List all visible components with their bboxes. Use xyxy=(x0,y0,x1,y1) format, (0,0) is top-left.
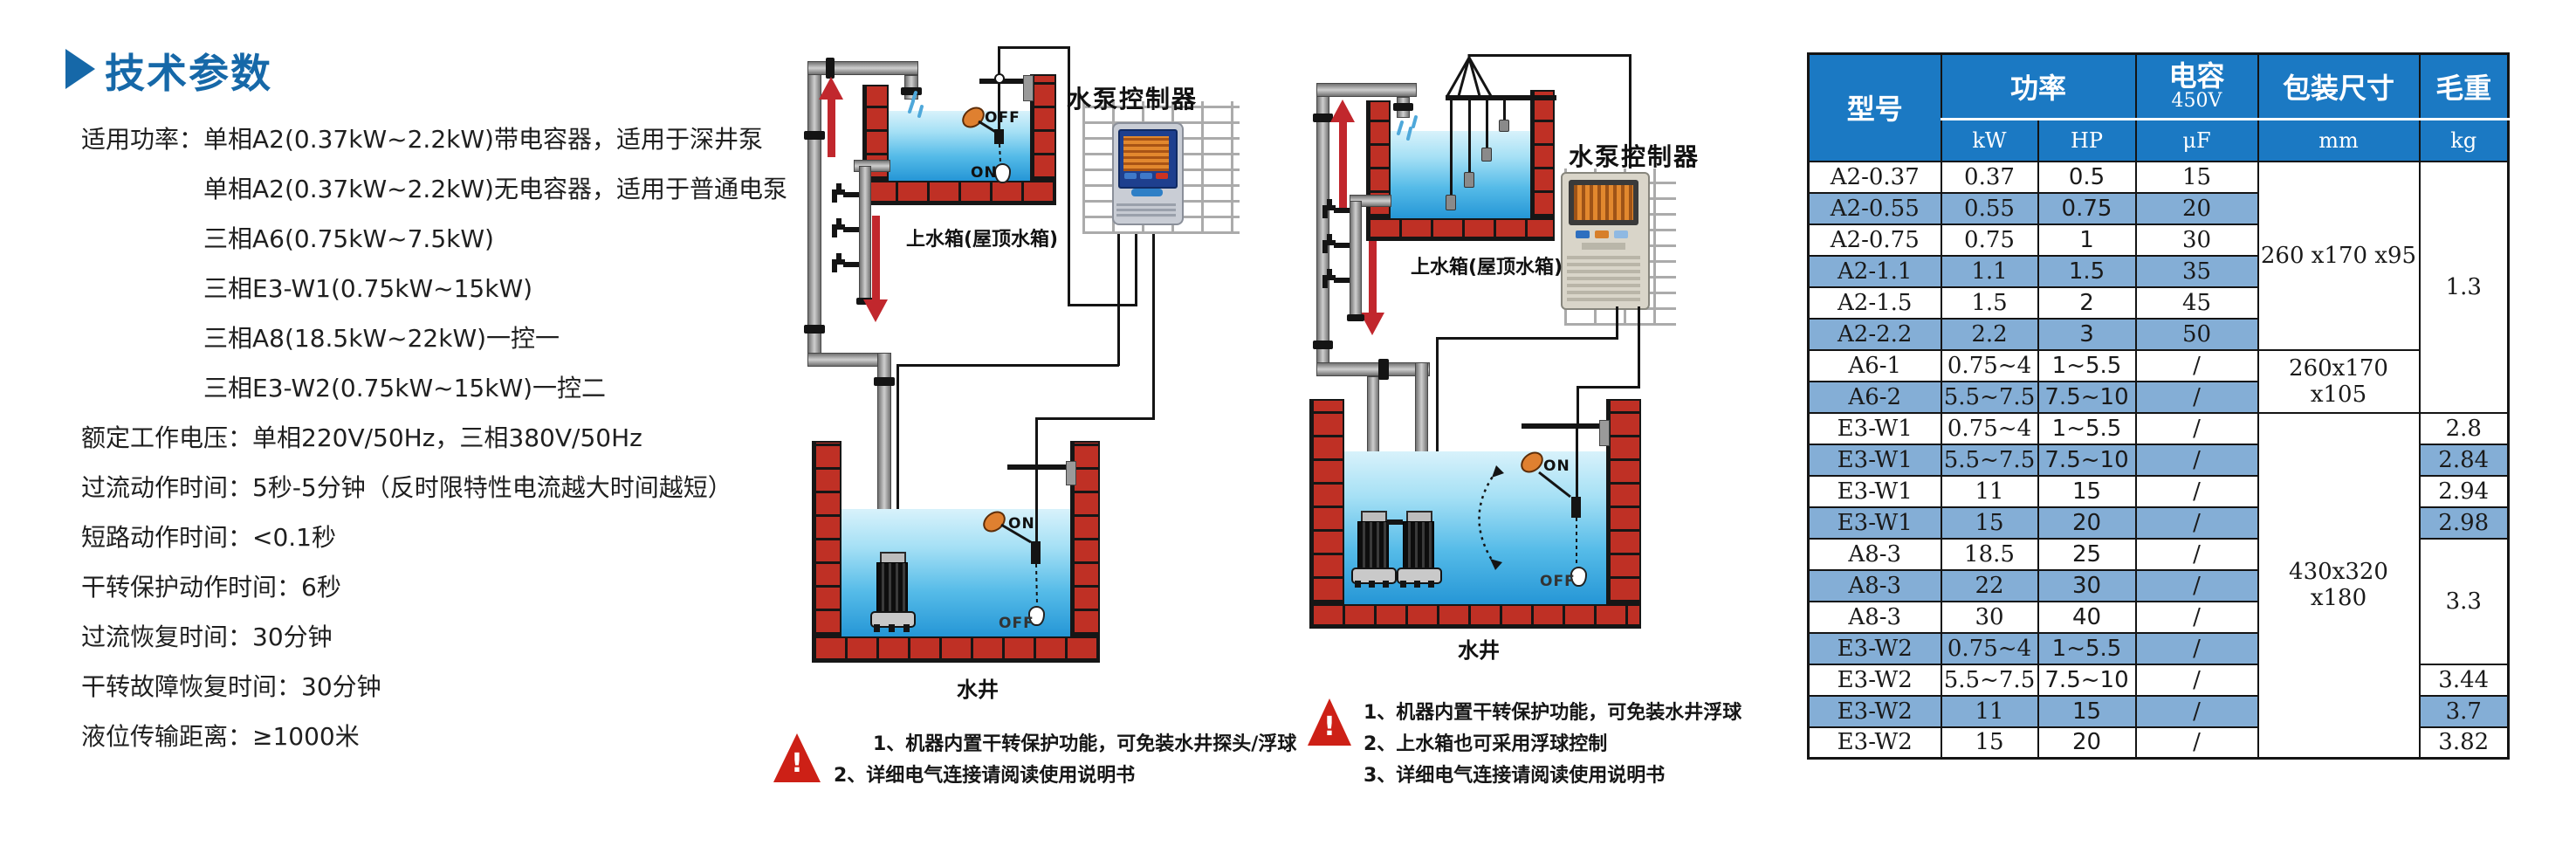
submersible-pump xyxy=(876,562,908,615)
cell-hp: 1~5.5 xyxy=(2038,633,2136,664)
cell-uf: / xyxy=(2136,539,2258,570)
cell-model: A2-0.75 xyxy=(1809,224,1941,256)
well-float-on-label: ON xyxy=(1543,457,1570,475)
tank-right-wall xyxy=(1530,90,1555,218)
note-line: 2、上水箱也可采用浮球控制 xyxy=(1364,728,1607,756)
riser-pipe xyxy=(1316,83,1329,376)
probe-electrode xyxy=(1464,172,1474,188)
wire xyxy=(1436,337,1618,340)
tank-float-off-label: OFF xyxy=(985,109,1020,127)
table-body: A2-0.370.370.515260 x170 x951.3A2-0.550.… xyxy=(1809,162,2509,759)
wire xyxy=(1576,429,1578,499)
unit-kg: kg xyxy=(2420,120,2509,162)
cell-model: E3-W1 xyxy=(1809,444,1941,476)
controller-badge xyxy=(1131,189,1163,196)
note-line: 1、机器内置干转保护功能，可免装水井浮球 xyxy=(1364,697,1741,725)
cell-kw: 11 xyxy=(1941,476,2038,507)
wire xyxy=(1486,100,1488,151)
float-weight xyxy=(1571,497,1581,518)
cell-uf: / xyxy=(2136,382,2258,413)
wire xyxy=(1577,386,1640,389)
cell-kw: 11 xyxy=(1941,696,2038,727)
tank-label: 上水箱(屋顶水箱) xyxy=(906,224,1058,251)
wire xyxy=(1469,54,1631,57)
faucet-icon xyxy=(1320,199,1350,222)
leg xyxy=(1428,581,1434,588)
well-float-on-label: ON xyxy=(1008,515,1035,533)
cell-packing: 260 x170 x95 xyxy=(2258,162,2420,350)
wire xyxy=(1035,417,1038,467)
spec-line: 三相E3-W1(0.75kW~15kW) xyxy=(203,276,532,302)
plate xyxy=(1023,75,1034,101)
plate xyxy=(1066,461,1076,485)
page: 技术参数 适用功率：单相A2(0.37kW~2.2kW)带电容器，适用于深井泵单… xyxy=(0,0,2576,853)
cell-hp: 1.5 xyxy=(2038,256,2136,287)
cell-kw: 22 xyxy=(1941,570,2038,602)
fit xyxy=(1393,103,1413,111)
cell-uf: / xyxy=(2136,602,2258,633)
wire xyxy=(1117,223,1120,366)
unit-mm: mm xyxy=(2258,120,2420,162)
page-title: 技术参数 xyxy=(105,42,272,100)
flow-up-arrow xyxy=(1330,100,1355,122)
cell-model: A2-0.37 xyxy=(1809,162,1941,193)
cell-uf: / xyxy=(2136,413,2258,444)
controller-vents xyxy=(1567,256,1640,301)
leg xyxy=(889,624,895,632)
leg xyxy=(1355,581,1361,588)
spec-line: 适用功率：单相A2(0.37kW~2.2kW)带电容器，适用于深井泵 xyxy=(81,127,763,153)
bottom-pipe xyxy=(1316,362,1430,376)
shaft xyxy=(828,100,835,157)
table-row: A2-0.370.370.515260 x170 x951.3 xyxy=(1809,162,2509,193)
tank-bottom xyxy=(1366,218,1555,241)
cell-model: E3-W2 xyxy=(1809,696,1941,727)
tr: 型号 功率 电容 450V 包装尺寸 毛重 xyxy=(1809,54,2509,120)
wire xyxy=(1135,223,1137,306)
sp xyxy=(1322,244,1328,253)
spec-line: 干转保护动作时间：6秒 xyxy=(81,574,341,601)
well-float-off-label: OFF xyxy=(1540,573,1576,590)
wire xyxy=(998,46,1000,84)
plate xyxy=(1599,420,1610,446)
capacitance-voltage: 450V xyxy=(2137,91,2257,112)
fit xyxy=(804,131,825,140)
cell-hp: 0.5 xyxy=(2038,162,2136,193)
fit xyxy=(1378,359,1389,380)
well-right-wall xyxy=(1606,399,1641,604)
cell-model: A6-2 xyxy=(1809,382,1941,413)
cell-hp: 1~5.5 xyxy=(2038,350,2136,382)
tank-water xyxy=(1391,131,1530,218)
submersible-pump xyxy=(1403,521,1434,571)
faucet-icon xyxy=(1320,234,1350,257)
cell-weight: 3.44 xyxy=(2420,664,2509,696)
cell-uf: 20 xyxy=(2136,193,2258,224)
cell-model: E3-W2 xyxy=(1809,727,1941,759)
cell-uf: / xyxy=(2136,727,2258,759)
well-bottom xyxy=(812,636,1100,663)
cell-kw: 18.5 xyxy=(1941,539,2038,570)
tap-downpipe xyxy=(1350,201,1362,320)
spec-line: 过流恢复时间：30分钟 xyxy=(81,624,333,650)
faucet-icon xyxy=(1320,269,1350,292)
well-float-bracket xyxy=(1522,423,1606,429)
sp xyxy=(832,263,837,272)
col-capacitance: 电容 450V xyxy=(2136,54,2258,120)
spec-line: 单相A2(0.37kW~2.2kW)无电容器，适用于普通电泵 xyxy=(203,176,787,203)
cell-uf: 45 xyxy=(2136,287,2258,319)
cell-kw: 2.2 xyxy=(1941,319,2038,350)
spec-line: 干转故障恢复时间：30分钟 xyxy=(81,674,381,700)
cell-weight: 2.84 xyxy=(2420,444,2509,476)
wire xyxy=(1035,470,1038,543)
cell-model: E3-W1 xyxy=(1809,507,1941,539)
col-model: 型号 xyxy=(1809,54,1941,162)
controller-badge xyxy=(1582,243,1625,250)
cell-kw: 0.55 xyxy=(1941,193,2038,224)
cell-weight: 1.3 xyxy=(2420,162,2509,413)
leg xyxy=(1400,581,1406,588)
well-label: 水井 xyxy=(925,672,1030,703)
cell-kw: 15 xyxy=(1941,507,2038,539)
cell-hp: 40 xyxy=(2038,602,2136,633)
cell-kw: 1.1 xyxy=(1941,256,2038,287)
table-header: 型号 功率 电容 450V 包装尺寸 毛重 kW HP μF mm kg xyxy=(1809,54,2509,162)
cell-kw: 15 xyxy=(1941,727,2038,759)
table-row: A6-10.75~41~5.5/260x170 x105 xyxy=(1809,350,2509,382)
wire xyxy=(1616,306,1618,340)
wire xyxy=(1450,100,1453,198)
submersible-pump xyxy=(1357,521,1389,571)
cell-kw: 0.75 xyxy=(1941,224,2038,256)
hd xyxy=(1327,269,1332,277)
well-left-wall xyxy=(812,441,841,636)
leg xyxy=(1369,581,1375,588)
probe-electrode xyxy=(1446,195,1456,210)
cell-kw: 0.75~4 xyxy=(1941,413,2038,444)
spec-line: 三相A6(0.75kW~7.5kW) xyxy=(203,226,494,252)
cell-uf: / xyxy=(2136,444,2258,476)
cell-uf: / xyxy=(2136,696,2258,727)
controller-display xyxy=(1574,185,1633,220)
flow-down-arrow xyxy=(863,299,888,322)
cell-kw: 30 xyxy=(1941,602,2038,633)
cell-weight: 2.98 xyxy=(2420,507,2509,539)
cell-model: E3-W1 xyxy=(1809,413,1941,444)
wire xyxy=(1152,223,1155,419)
faucet-icon xyxy=(829,253,859,276)
cell-model: A8-3 xyxy=(1809,602,1941,633)
cell-hp: 0.75 xyxy=(2038,193,2136,224)
spec-line: 三相A8(18.5kW~22kW)一控一 xyxy=(203,326,560,352)
faucet-icon xyxy=(829,218,859,241)
heading-triangle-icon xyxy=(65,49,95,89)
cell-model: E3-W1 xyxy=(1809,476,1941,507)
cell-hp: 1 xyxy=(2038,224,2136,256)
hd xyxy=(1327,199,1332,207)
leg xyxy=(874,624,880,632)
hd xyxy=(836,253,841,261)
spec-line: 过流动作时间：5秒-5分钟（反时限特性电流越大时间越短） xyxy=(81,475,732,501)
table-row: E3-W10.75~41~5.5/430x320 x1802.8 xyxy=(1809,413,2509,444)
sp xyxy=(1322,209,1328,218)
shaft xyxy=(1339,122,1347,211)
cell-hp: 20 xyxy=(2038,727,2136,759)
shaft xyxy=(872,216,880,299)
bar xyxy=(1387,519,1403,525)
cell-kw: 1.5 xyxy=(1941,287,2038,319)
hd xyxy=(836,183,841,191)
controller-vents xyxy=(1116,203,1176,218)
cell-model: E3-W2 xyxy=(1809,664,1941,696)
gantry-legs xyxy=(1447,54,1491,96)
tank-right-wall xyxy=(1030,74,1056,181)
controller-button xyxy=(1614,230,1628,238)
cell-uf: / xyxy=(2136,350,2258,382)
controller-label: 水泵控制器 xyxy=(1569,138,1700,173)
cell-model: A2-2.2 xyxy=(1809,319,1941,350)
cell-hp: 7.5~10 xyxy=(2038,382,2136,413)
cell-kw: 0.75~4 xyxy=(1941,350,2038,382)
cell-hp: 7.5~10 xyxy=(2038,664,2136,696)
warning-icon: ! xyxy=(773,733,821,782)
cell-hp: 25 xyxy=(2038,539,2136,570)
hd xyxy=(836,218,841,226)
cell-kw: 0.75~4 xyxy=(1941,633,2038,664)
controller-button xyxy=(1595,230,1609,238)
fit xyxy=(804,325,825,334)
note-line: 2、详细电气连接请阅读使用说明书 xyxy=(834,760,1135,788)
controller-button xyxy=(1140,173,1152,179)
wire xyxy=(1068,304,1137,306)
cell-packing: 430x320 x180 xyxy=(2258,413,2420,759)
cell-kw: 5.5~7.5 xyxy=(1941,382,2038,413)
cell-uf: / xyxy=(2136,507,2258,539)
col-weight: 毛重 xyxy=(2420,54,2509,120)
cell-model: E3-W2 xyxy=(1809,633,1941,664)
cell-uf: 50 xyxy=(2136,319,2258,350)
span: ! xyxy=(1308,712,1351,742)
wire xyxy=(896,364,1119,367)
cell-packing: 260x170 x105 xyxy=(2258,350,2420,413)
col-power: 功率 xyxy=(1941,54,2136,120)
tank-float-on-label: ON xyxy=(971,164,998,182)
spec-line: 三相E3-W2(0.75kW~15kW)一控二 xyxy=(203,375,606,402)
wire xyxy=(998,46,1070,49)
tap-downpipe xyxy=(859,166,871,303)
col-packing: 包装尺寸 xyxy=(2258,54,2420,120)
controller-button xyxy=(1156,173,1168,179)
cell-hp: 20 xyxy=(2038,507,2136,539)
cell-hp: 3 xyxy=(2038,319,2136,350)
well-float-off-label: OFF xyxy=(999,615,1034,632)
leg xyxy=(903,624,910,632)
cell-model: A8-3 xyxy=(1809,570,1941,602)
cell-weight: 3.3 xyxy=(2420,539,2509,664)
well-float-bracket xyxy=(1007,464,1072,470)
cell-uf: / xyxy=(2136,633,2258,664)
fit xyxy=(901,87,922,95)
cell-model: A8-3 xyxy=(1809,539,1941,570)
tank-label: 上水箱(屋顶水箱) xyxy=(1411,251,1563,279)
cell-weight: 2.94 xyxy=(2420,476,2509,507)
cell-uf: / xyxy=(2136,664,2258,696)
controller-button xyxy=(1124,173,1137,179)
cell-weight: 2.8 xyxy=(2420,413,2509,444)
cell-uf: 15 xyxy=(2136,162,2258,193)
spec-line: 额定工作电压：单相220V/50Hz，三相380V/50Hz xyxy=(81,425,642,451)
cell-kw: 5.5~7.5 xyxy=(1941,664,2038,696)
cell-uf: 30 xyxy=(2136,224,2258,256)
cell-weight: 3.7 xyxy=(2420,696,2509,727)
float-weight xyxy=(994,129,1004,144)
cell-hp: 2 xyxy=(2038,287,2136,319)
cell-uf: 35 xyxy=(2136,256,2258,287)
tank-bottom xyxy=(862,181,1056,205)
probe-gantry xyxy=(1446,95,1556,100)
wire xyxy=(1638,306,1640,389)
cell-hp: 7.5~10 xyxy=(2038,444,2136,476)
controller-display xyxy=(1123,136,1169,171)
unit-kw: kW xyxy=(1941,120,2038,162)
cell-weight: 3.82 xyxy=(2420,727,2509,759)
probe-electrode xyxy=(1499,120,1509,132)
cell-uf: / xyxy=(2136,570,2258,602)
wire xyxy=(1035,417,1155,420)
controller-label: 水泵控制器 xyxy=(1067,80,1198,115)
sp xyxy=(832,193,837,203)
fit xyxy=(874,377,895,386)
cell-model: A2-0.55 xyxy=(1809,193,1941,224)
cell-hp: 15 xyxy=(2038,476,2136,507)
spec-line: 短路动作时间：<0.1秒 xyxy=(81,525,336,551)
cell-model: A6-1 xyxy=(1809,350,1941,382)
cell-model: A2-1.1 xyxy=(1809,256,1941,287)
cell-kw: 0.37 xyxy=(1941,162,2038,193)
cell-hp: 15 xyxy=(2038,696,2136,727)
wire xyxy=(1577,386,1579,428)
spec-line: 液位传输距离：≥1000米 xyxy=(81,724,360,750)
fit xyxy=(1313,341,1333,349)
note-line: 1、机器内置干转保护功能，可免装水井探头/浮球 xyxy=(873,728,1296,756)
sp xyxy=(1322,279,1328,288)
fit xyxy=(1347,314,1364,321)
spec-table: 型号 功率 电容 450V 包装尺寸 毛重 kW HP μF mm kg A2-… xyxy=(1807,52,2510,760)
unit-hp: HP xyxy=(2038,120,2136,162)
fit xyxy=(826,58,835,79)
cell-uf: / xyxy=(2136,476,2258,507)
capacitance-title: 电容 xyxy=(2137,61,2257,91)
riser-pipe xyxy=(807,61,821,367)
wire xyxy=(1468,100,1471,175)
float-weight xyxy=(1031,541,1041,564)
leg xyxy=(1383,581,1389,588)
faucet-icon xyxy=(829,183,859,206)
top-pipe xyxy=(807,61,918,75)
note-line: 3、详细电气连接请阅读使用说明书 xyxy=(1364,760,1665,788)
controller-button xyxy=(1576,230,1590,238)
cell-hp: 30 xyxy=(2038,570,2136,602)
flow-up-arrow xyxy=(819,77,843,100)
cell-hp: 1~5.5 xyxy=(2038,413,2136,444)
cell-kw: 5.5~7.5 xyxy=(1941,444,2038,476)
well-bottom xyxy=(1309,604,1641,629)
hd xyxy=(1327,234,1332,242)
cell-model: A2-1.5 xyxy=(1809,287,1941,319)
sp xyxy=(832,228,837,237)
well-left-wall xyxy=(1309,399,1344,604)
unit-uf: μF xyxy=(2136,120,2258,162)
top-pipe xyxy=(1316,83,1417,97)
leg xyxy=(1414,581,1420,588)
probe-electrode xyxy=(1481,148,1492,162)
warning-icon: ! xyxy=(1308,698,1351,746)
span: ! xyxy=(773,748,821,779)
well-label: 水井 xyxy=(1426,633,1531,664)
